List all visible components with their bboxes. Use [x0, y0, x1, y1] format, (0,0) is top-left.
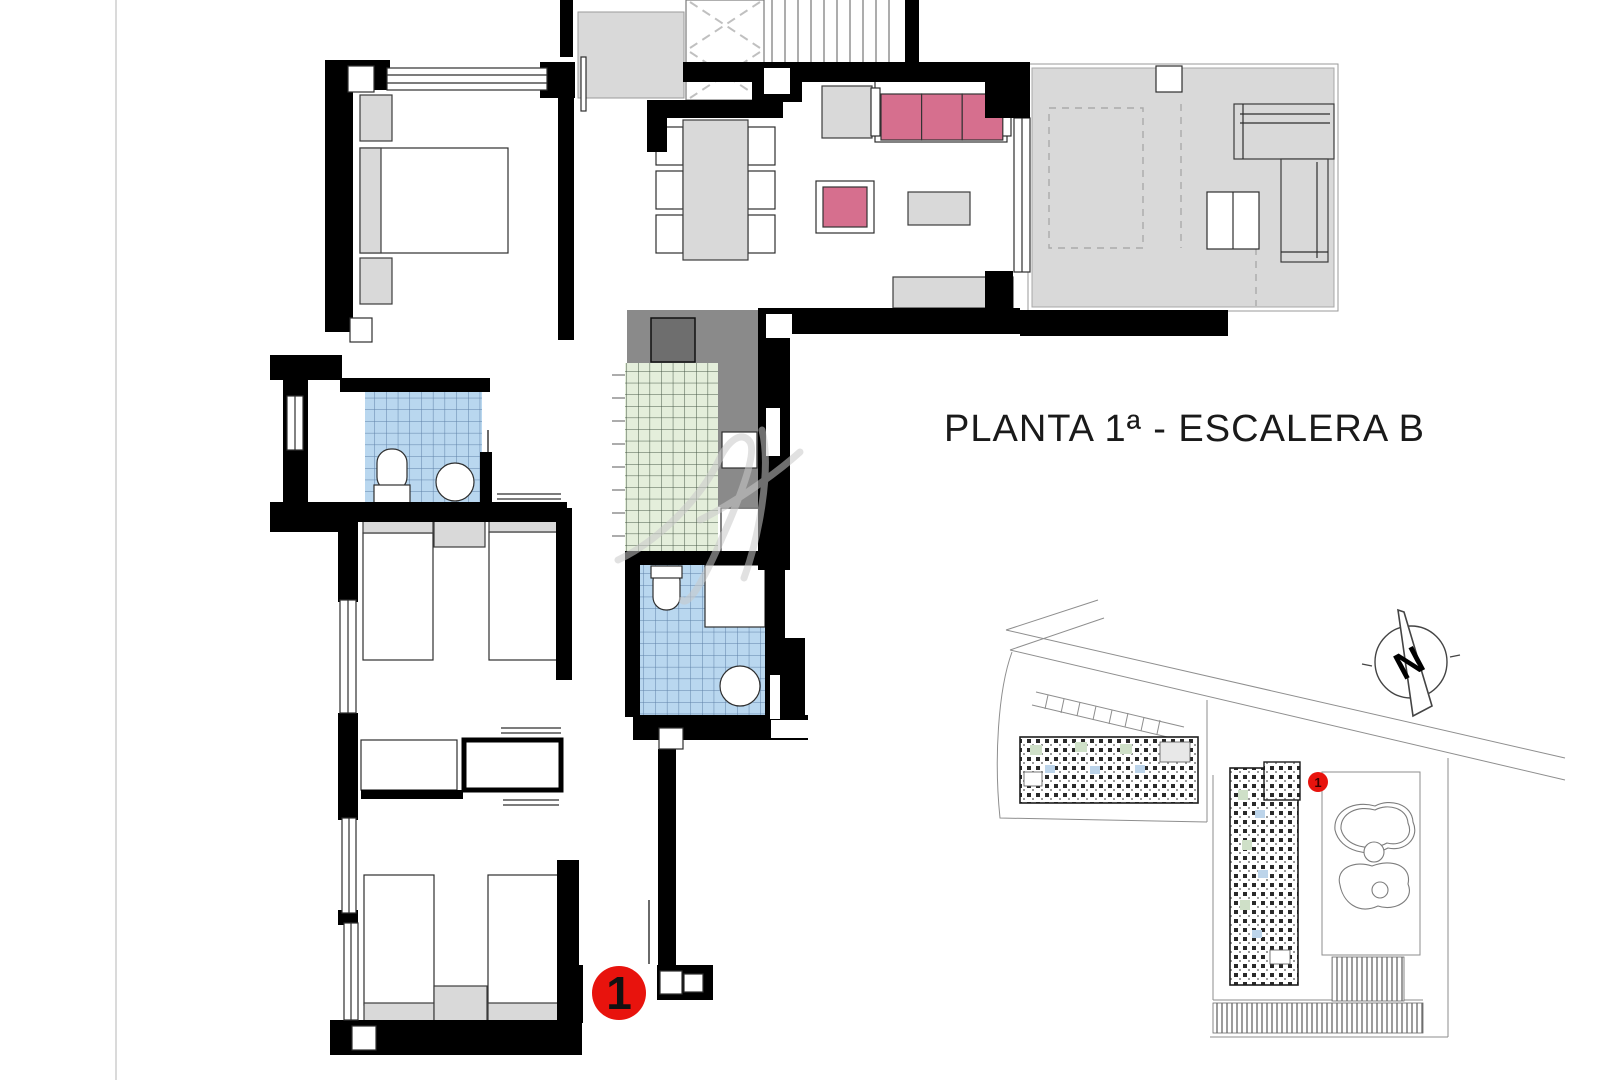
- window: [344, 923, 358, 1020]
- site-pools: [1335, 803, 1415, 909]
- pillar-notch: [684, 974, 703, 992]
- plan-title: PLANTA 1ª - ESCALERA B: [944, 408, 1425, 450]
- site-building-b: [1230, 762, 1300, 985]
- plan-sheet: PLANTA 1ª - ESCALERA B 1: [0, 0, 1620, 1080]
- landing-door-leaf: [581, 57, 586, 111]
- terrace-notch: [1156, 66, 1182, 92]
- pillar-notch: [660, 971, 682, 994]
- twin-bed: [488, 875, 558, 1005]
- pillar-notch: [348, 66, 374, 92]
- window: [342, 818, 356, 913]
- window: [287, 396, 303, 450]
- floor-plan-drawing: PLANTA 1ª - ESCALERA B 1: [0, 0, 1620, 1080]
- site-plan: N 1: [997, 600, 1565, 1037]
- kitchen-tile-ticks: [612, 375, 625, 536]
- coffee-table: [908, 192, 970, 225]
- elevator-landing: [578, 12, 684, 98]
- pillar-notch: [352, 1026, 376, 1050]
- terrace-wall-opening: [1228, 315, 1262, 336]
- bed-headboard: [360, 148, 381, 253]
- wardrobe: [361, 740, 457, 790]
- elevator-core: [578, 0, 919, 100]
- armchair: [816, 181, 874, 233]
- door-opening: [659, 728, 683, 749]
- north-arrow: N: [1362, 610, 1460, 716]
- terrace-side-table: [1207, 192, 1259, 249]
- bedroom-3: [361, 728, 561, 1023]
- pillar-notch: [350, 318, 372, 342]
- nightstand: [360, 95, 392, 141]
- site-unit-marker: 1: [1308, 772, 1328, 792]
- twin-bed: [363, 533, 433, 660]
- dining-table: [683, 120, 748, 260]
- door-opening: [766, 314, 792, 338]
- dining-chair: [748, 171, 775, 209]
- nightstand: [434, 986, 487, 1023]
- dining-chair: [748, 215, 775, 253]
- side-table: [822, 86, 872, 138]
- sink: [720, 666, 760, 706]
- sink: [436, 463, 474, 501]
- window: [340, 600, 356, 713]
- toilet: [651, 566, 682, 610]
- entry-door-opening: [764, 68, 790, 94]
- wardrobe-base-wall: [361, 790, 463, 799]
- kitchen-appliance: [651, 318, 695, 362]
- dining-area: [656, 120, 775, 260]
- wall-slot: [770, 675, 780, 719]
- unit-marker-label: 1: [606, 967, 632, 1019]
- double-bed: [360, 148, 508, 253]
- toilet: [374, 449, 410, 503]
- wardrobe-framed: [464, 740, 561, 790]
- window: [387, 68, 547, 90]
- dining-chair: [748, 127, 775, 165]
- site-unit-marker-label: 1: [1314, 775, 1321, 790]
- stair-wall: [905, 0, 919, 62]
- shower-tray: [705, 565, 765, 627]
- twin-bed: [489, 532, 557, 660]
- bedroom-1: [360, 95, 508, 304]
- unit-marker: 1: [592, 966, 646, 1020]
- dining-chair: [656, 171, 683, 209]
- kitchen: [612, 310, 763, 553]
- site-building-a: [1020, 737, 1198, 803]
- dining-chair: [656, 215, 683, 253]
- terrace: [1028, 64, 1338, 311]
- twin-bed: [364, 875, 434, 1005]
- door-opening: [771, 720, 808, 738]
- stairs: [772, 0, 889, 62]
- apartment-plan: [270, 0, 1338, 1055]
- bedroom-2: [363, 513, 557, 660]
- nightstand: [360, 258, 392, 304]
- bathroom-1: [365, 390, 561, 503]
